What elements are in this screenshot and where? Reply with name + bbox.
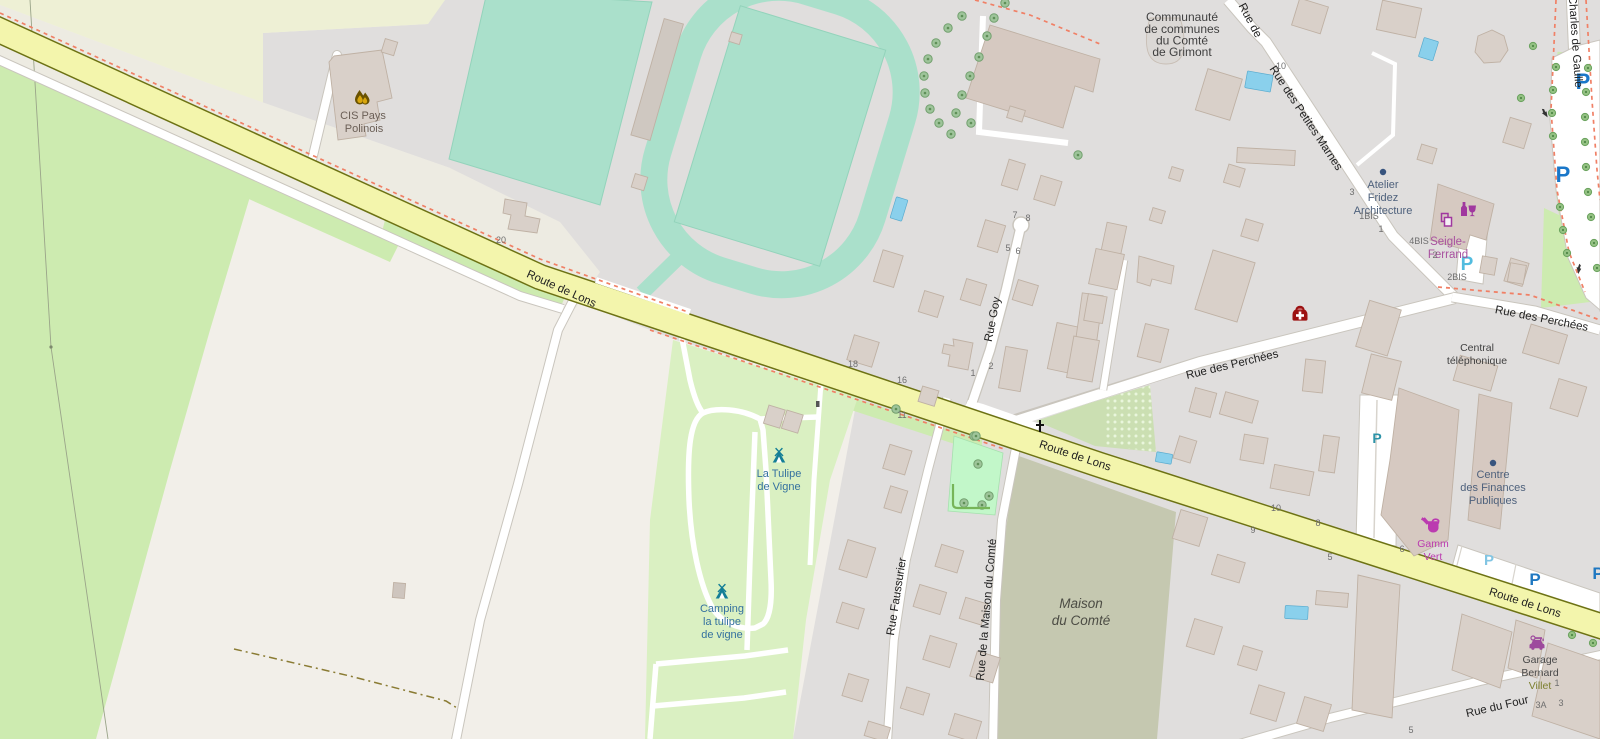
svg-text:6: 6: [1399, 544, 1404, 554]
svg-text:de vigne: de vigne: [701, 629, 743, 641]
svg-text:5: 5: [1327, 552, 1332, 562]
svg-text:2: 2: [988, 361, 993, 371]
svg-text:18: 18: [848, 359, 858, 369]
svg-text:Villet: Villet: [1529, 680, 1552, 692]
svg-text:Fridez: Fridez: [1368, 192, 1399, 204]
svg-text:P: P: [1592, 564, 1600, 583]
svg-text:téléphonique: téléphonique: [1447, 355, 1507, 367]
svg-text:5: 5: [1408, 725, 1413, 735]
svg-text:1BIS: 1BIS: [1359, 211, 1379, 221]
svg-text:8: 8: [1025, 213, 1030, 223]
svg-text:Vert: Vert: [1424, 551, 1443, 563]
svg-text:Bernard: Bernard: [1521, 667, 1559, 679]
svg-text:6: 6: [1015, 246, 1020, 256]
svg-text:du Comté: du Comté: [1052, 613, 1111, 628]
svg-text:16: 16: [897, 375, 907, 385]
svg-text:Garage: Garage: [1522, 654, 1557, 666]
svg-text:1: 1: [1554, 678, 1559, 688]
svg-text:Polinois: Polinois: [345, 123, 384, 135]
svg-text:20: 20: [496, 235, 506, 245]
svg-text:P: P: [1372, 430, 1381, 446]
svg-text:Publiques: Publiques: [1469, 495, 1518, 507]
svg-text:9: 9: [1250, 525, 1255, 535]
svg-text:Maison: Maison: [1059, 596, 1103, 611]
svg-text:5: 5: [1005, 243, 1010, 253]
svg-text:3: 3: [1349, 187, 1354, 197]
svg-text:8: 8: [1315, 518, 1320, 528]
svg-text:10: 10: [1271, 503, 1281, 513]
svg-text:P: P: [1484, 552, 1494, 569]
svg-text:La Tulipe: La Tulipe: [757, 468, 802, 480]
svg-text:1: 1: [970, 368, 975, 378]
svg-text:1: 1: [1378, 224, 1383, 234]
svg-text:3: 3: [1558, 698, 1563, 708]
svg-text:CIS Pays: CIS Pays: [340, 110, 386, 122]
svg-text:des Finances: des Finances: [1460, 482, 1526, 494]
svg-text:2BIS: 2BIS: [1447, 272, 1467, 282]
svg-text:10: 10: [1276, 61, 1286, 71]
svg-text:P: P: [1529, 570, 1540, 589]
svg-text:de Grimont: de Grimont: [1152, 45, 1212, 59]
svg-text:7: 7: [1012, 210, 1017, 220]
svg-text:Atelier: Atelier: [1367, 179, 1399, 191]
svg-text:de Vigne: de Vigne: [757, 481, 800, 493]
svg-text:P: P: [1556, 162, 1571, 187]
svg-text:Seigle-: Seigle-: [1430, 236, 1466, 248]
svg-text:2: 2: [1432, 250, 1437, 260]
svg-text:Central: Central: [1460, 342, 1494, 354]
svg-text:Gamm: Gamm: [1417, 538, 1449, 550]
svg-text:11: 11: [897, 410, 906, 420]
svg-text:4BIS: 4BIS: [1409, 236, 1429, 246]
svg-text:Camping: Camping: [700, 603, 744, 615]
svg-text:3A: 3A: [1535, 700, 1546, 710]
svg-text:Centre: Centre: [1476, 469, 1509, 481]
svg-text:la tulipe: la tulipe: [703, 616, 741, 628]
